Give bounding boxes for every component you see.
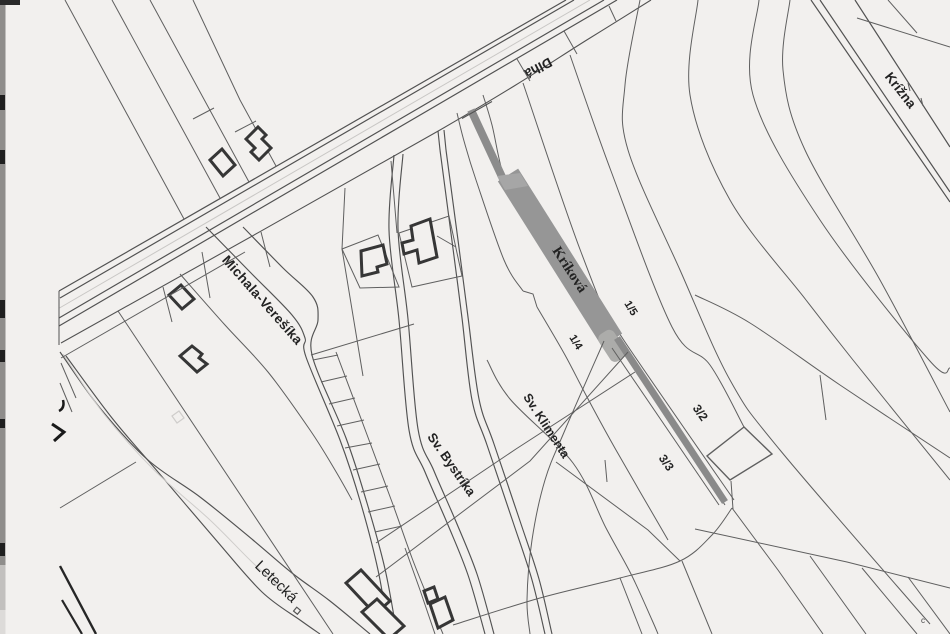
svg-text:c: c xyxy=(921,616,925,625)
